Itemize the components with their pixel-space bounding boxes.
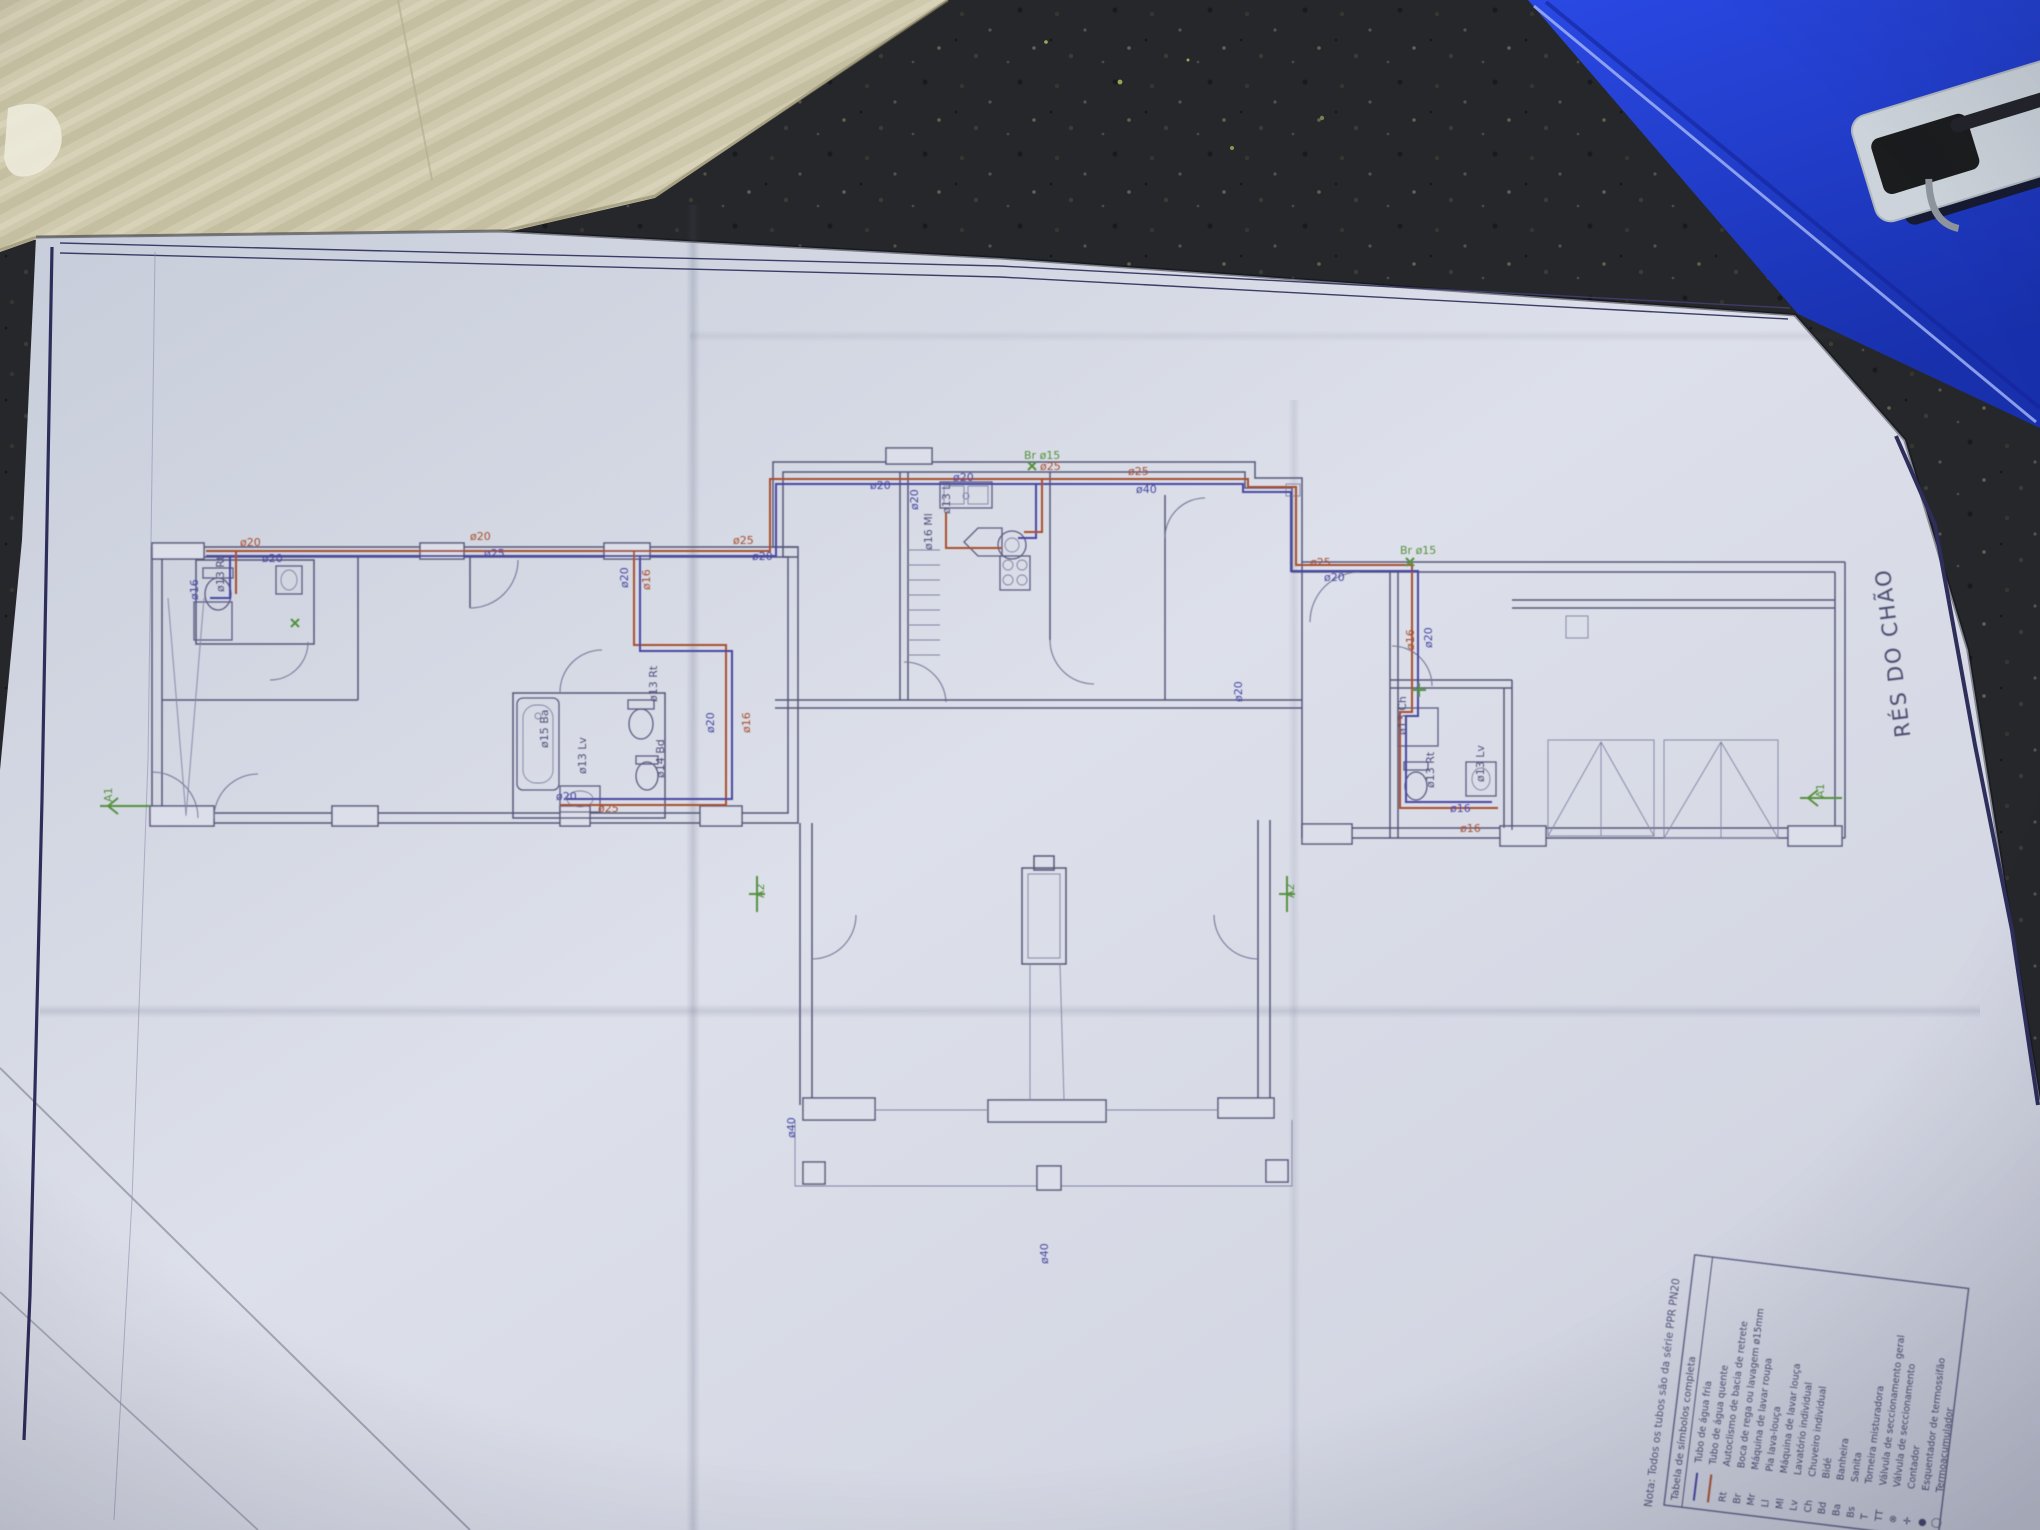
photo-canvas: ø20ø20ø20ø25ø25ø20ø20ø20ø25Br ø15ø25ø40ø…: [0, 0, 2040, 1530]
photo-of-floor-plan: ø20ø20ø20ø25ø25ø20ø20ø20ø25Br ø15ø25ø40ø…: [0, 0, 2040, 1530]
vignette: [0, 0, 2040, 1530]
